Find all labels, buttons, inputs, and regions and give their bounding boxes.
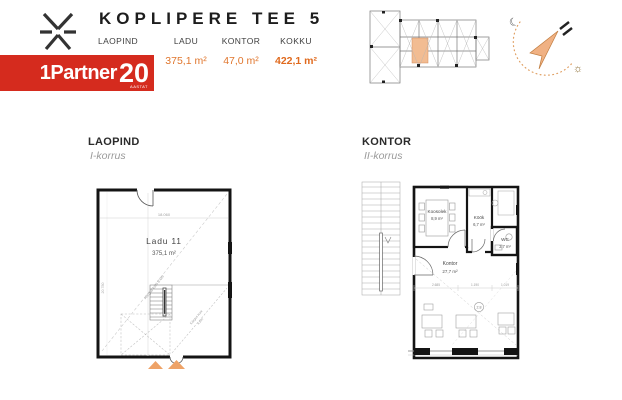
laopind-section-subtitle: I-korrus [90, 150, 126, 162]
brand-logo: 1Partner 20 AASTAT [0, 55, 154, 91]
brand-anniversary-number: 20 [119, 60, 149, 87]
room-name: Köök [474, 215, 485, 220]
kontor-section-title: KONTOR [362, 136, 411, 148]
height-note-1: Kõrgus kuni 6.0m [143, 275, 165, 301]
stat-laopind: LAOPIND [83, 36, 153, 55]
laopind-section-title: LAOPIND [88, 136, 140, 148]
stat-value: 422,1 m² [261, 55, 331, 67]
brand-subtext: AASTAT [130, 84, 148, 89]
gate-opening [121, 314, 170, 355]
room-name: Ladu 11 [146, 236, 182, 246]
compass-sunpath: ☾ ☼ [503, 12, 591, 84]
room-area: 3,7 m² [499, 244, 511, 249]
kontor-section-subtitle: II-korrus [364, 150, 403, 162]
room-area: 375,1 m² [152, 251, 176, 257]
room-name: WC [501, 237, 509, 242]
floorplan-flyer-page: KOPLIPERE TEE 5 LAOPIND LADU 375,1 m² KO… [0, 0, 622, 400]
desks-icon [422, 304, 515, 337]
laopind-floorplan: 18.060 20.780 Ladu 11 375,1 m² Kõrgus ku… [85, 178, 245, 378]
stat-label: KOKKU [261, 36, 331, 46]
room-name: Koosolek [428, 209, 448, 214]
dim-label: 1.190 [471, 283, 479, 287]
sun-icon: ☼ [573, 63, 583, 75]
stairs-icon [362, 182, 400, 295]
dim-label: 1.019 [501, 283, 509, 287]
entrance-triangles [148, 360, 185, 369]
dim-label: 2.685 [432, 283, 440, 287]
kontor-floorplan: Koosolek 8,9 m² Köök 6,7 m² WC 3,7 m² Ko… [352, 175, 524, 385]
moon-icon: ☾ [508, 15, 521, 30]
north-mark-icon [560, 22, 572, 35]
door-arc-icon [472, 239, 485, 252]
door-arc-icon [448, 230, 465, 247]
dim-top: 18.060 [158, 212, 171, 217]
dim-left: 20.780 [101, 283, 105, 294]
stat-kokku: KOKKU 422,1 m² [261, 36, 331, 67]
page-title: KOPLIPERE TEE 5 [99, 9, 324, 29]
stat-label: LAOPIND [83, 36, 153, 46]
north-arrow-icon [530, 31, 558, 69]
room-area: 6,7 m² [473, 222, 485, 227]
room-name: Kontor [443, 261, 458, 267]
height-badge: 2.8 [477, 306, 482, 310]
room-area: 8,9 m² [431, 216, 443, 221]
site-overview-plan [367, 7, 492, 87]
room-area: 27,7 m² [442, 269, 458, 274]
brand-name: 1Partner [40, 62, 117, 85]
